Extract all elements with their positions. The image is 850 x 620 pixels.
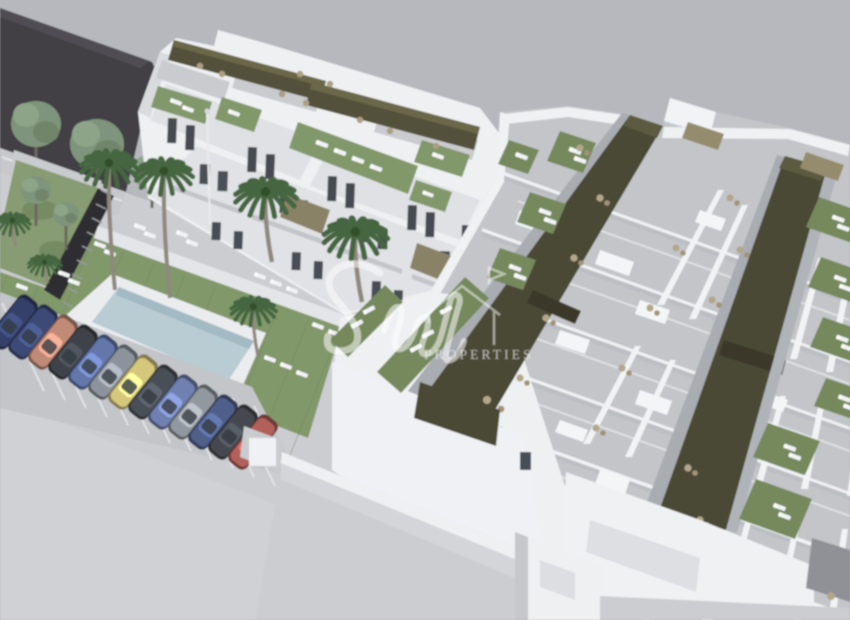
svg-text:PROPERTIES: PROPERTIES	[424, 347, 534, 362]
